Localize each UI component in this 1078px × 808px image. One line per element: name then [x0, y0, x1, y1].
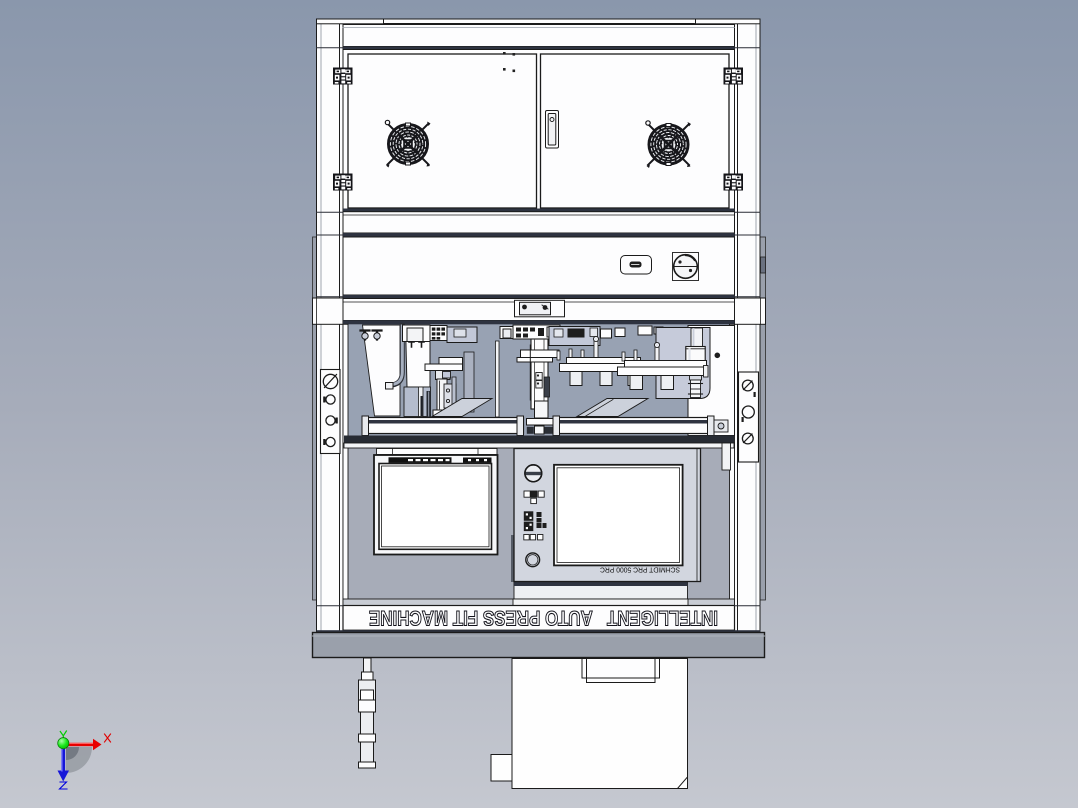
svg-text:INTELLIGENT AUTO PRESS FIT M: INTELLIGENT AUTO PRESS FIT MACHINE	[369, 606, 718, 629]
svg-text:SCHMIDT PRC 5000 PRC: SCHMIDT PRC 5000 PRC	[599, 566, 680, 575]
